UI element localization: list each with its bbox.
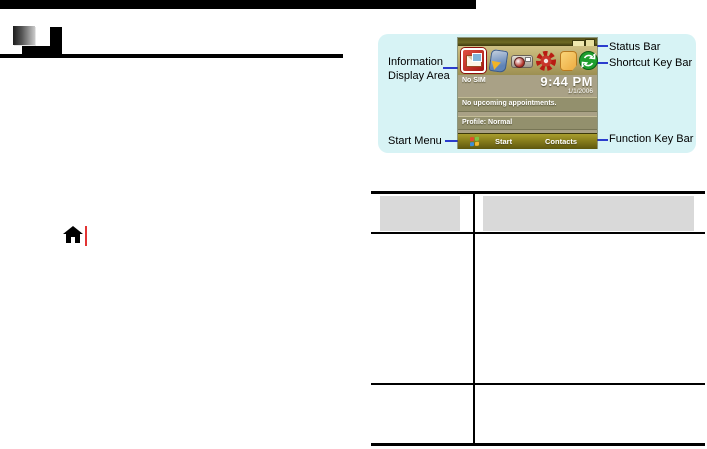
label-function-key-bar: Function Key Bar: [609, 132, 693, 146]
notes-icon[interactable]: [560, 51, 577, 71]
phone-function-key-bar: Start Contacts: [458, 133, 597, 149]
profile-text: Profile: Normal: [462, 119, 512, 126]
photo-icon: [472, 53, 482, 62]
connector-start-menu: [445, 140, 458, 142]
home-icon: [62, 226, 84, 244]
settings-icon[interactable]: [535, 50, 557, 72]
camera-lens-icon: [514, 57, 525, 68]
table-border-top: [371, 191, 705, 194]
table-header-cell: [380, 196, 460, 231]
connector-function-key-bar: [597, 139, 608, 141]
table-border-bottom: [371, 443, 705, 446]
phone-status-bar: [458, 38, 597, 46]
page-top-bar: [0, 0, 476, 9]
appointments-text: No upcoming appointments.: [462, 100, 557, 107]
clock-time: 9:44 PM: [540, 74, 593, 89]
label-information-display-area: Information Display Area: [388, 55, 458, 83]
section-logo-gradient-square: [13, 26, 35, 45]
camera-flash-icon: [525, 57, 531, 62]
reference-table: [371, 191, 705, 446]
connector-status-bar: [597, 45, 608, 47]
text-cursor: [85, 226, 87, 246]
windows-start-icon[interactable]: [470, 137, 479, 147]
label-shortcut-key-bar: Shortcut Key Bar: [609, 56, 692, 70]
clock-date: 1/1/2006: [568, 88, 593, 95]
no-sim-status: No SIM: [462, 77, 486, 84]
label-status-bar: Status Bar: [609, 40, 660, 54]
section-divider-rule: [0, 54, 343, 58]
table-row-divider: [371, 232, 705, 234]
call-arrow-icon: [488, 57, 501, 70]
table-column-divider: [473, 191, 475, 446]
camera-icon[interactable]: [511, 55, 533, 68]
table-row-divider: [371, 383, 705, 385]
activesync-icon[interactable]: [579, 51, 598, 70]
phone-icon[interactable]: [489, 49, 509, 73]
section-logo-shadow: [22, 46, 62, 54]
phone-home-screen: No SIM 9:44 PM 1/1/2006 No upcoming appo…: [458, 38, 597, 148]
messaging-icon[interactable]: [461, 48, 486, 73]
connector-information-display-area: [443, 67, 458, 69]
label-start-menu: Start Menu: [388, 134, 442, 148]
table-header-cell: [483, 196, 694, 231]
phone-shortcut-key-bar: [458, 46, 597, 75]
phone-information-display-area: No SIM 9:44 PM 1/1/2006 No upcoming appo…: [458, 75, 597, 133]
connector-shortcut-key-bar: [597, 62, 608, 64]
contacts-softkey[interactable]: Contacts: [545, 137, 577, 146]
start-softkey[interactable]: Start: [495, 137, 512, 146]
